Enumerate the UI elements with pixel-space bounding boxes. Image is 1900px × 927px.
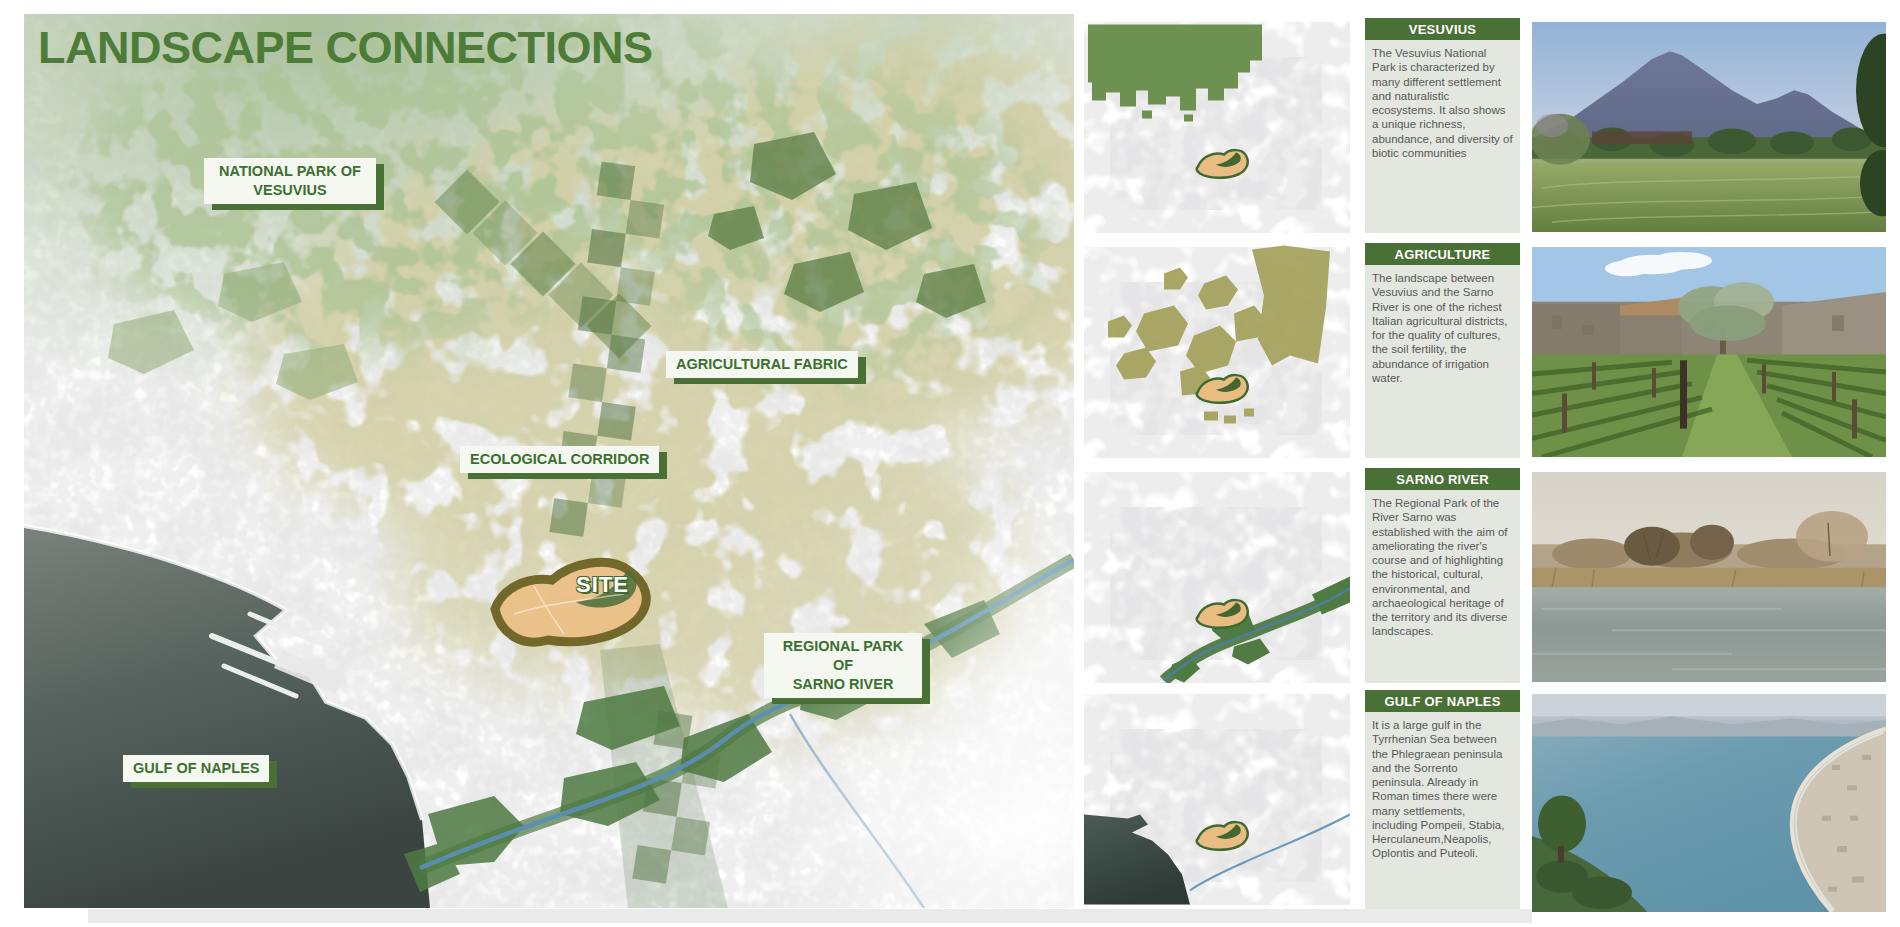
agriculture-panel: AGRICULTURE The landscape between Vesuvi…	[1365, 243, 1520, 458]
site-label: SITE	[576, 572, 629, 598]
gulf-of-naples-panel-text: It is a large gulf in the Tyrrhenian Sea…	[1365, 712, 1520, 867]
sarno-river-panel-text: The Regional Park of the River Sarno was…	[1365, 490, 1520, 645]
map-label-agricultural-fabric: AGRICULTURAL FABRIC	[666, 351, 858, 378]
label-line: REGIONAL PARK OF	[774, 637, 912, 675]
map-label-national-park-of-vesuvius: NATIONAL PARK OF VESUVIUS	[204, 158, 376, 204]
sarno-river-photo	[1532, 472, 1886, 682]
main-map: LANDSCAPE CONNECTIONS NATIONAL PARK OF V…	[24, 14, 1074, 908]
label-line: SARNO RIVER	[774, 675, 912, 694]
vesuvius-panel-text: The Vesuvius National Park is characteri…	[1365, 40, 1520, 166]
agriculture-photo	[1532, 247, 1886, 457]
vesuvius-panel-title: VESUVIUS	[1365, 18, 1520, 40]
map-label-regional-park-of-sarno-river: REGIONAL PARK OF SARNO RIVER	[764, 633, 922, 698]
label-line: GULF OF NAPLES	[133, 759, 259, 778]
gulf-of-naples-mini-map	[1084, 690, 1350, 905]
poster-bottom-edge	[88, 909, 1532, 923]
agriculture-panel-title: AGRICULTURE	[1365, 243, 1520, 265]
map-label-gulf-of-naples: GULF OF NAPLES	[123, 755, 269, 782]
vesuvius-panel: VESUVIUS The Vesuvius National Park is c…	[1365, 18, 1520, 233]
gulf-of-naples-panel-title: GULF OF NAPLES	[1365, 690, 1520, 712]
label-line: AGRICULTURAL FABRIC	[676, 355, 848, 374]
gulf-of-naples-photo	[1532, 694, 1886, 912]
vesuvius-photo	[1532, 22, 1886, 232]
vesuvius-mini-map	[1084, 18, 1350, 233]
gulf-of-naples-panel: GULF OF NAPLES It is a large gulf in the…	[1365, 690, 1520, 912]
agriculture-mini-map	[1084, 243, 1350, 458]
label-line: NATIONAL PARK OF	[214, 162, 366, 181]
label-line: VESUVIUS	[214, 181, 366, 200]
page-title: LANDSCAPE CONNECTIONS	[38, 22, 653, 74]
sarno-river-panel-title: SARNO RIVER	[1365, 468, 1520, 490]
label-line: ECOLOGICAL CORRIDOR	[470, 450, 649, 469]
sarno-river-panel: SARNO RIVER The Regional Park of the Riv…	[1365, 468, 1520, 683]
sarno-river-mini-map	[1084, 468, 1350, 683]
map-label-ecological-corridor: ECOLOGICAL CORRIDOR	[460, 446, 659, 473]
agriculture-panel-text: The landscape between Vesuvius and the S…	[1365, 265, 1520, 391]
